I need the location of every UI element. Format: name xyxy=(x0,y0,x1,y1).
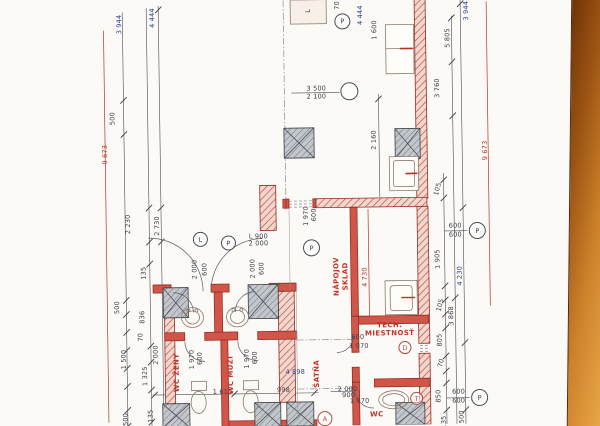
wall-segment xyxy=(205,332,238,340)
wall-segment xyxy=(165,333,185,341)
window xyxy=(389,156,418,190)
wall-segment xyxy=(164,316,175,404)
wall-segment xyxy=(316,197,427,208)
wall-segment xyxy=(260,185,277,230)
dimension-lines-red xyxy=(103,1,492,422)
wall-segment xyxy=(358,315,428,324)
scanned-floor-plan-photo: 3 9444 4449 6735002 2302 730135500836701… xyxy=(0,0,600,426)
wall-segment xyxy=(351,316,359,352)
sliding-door xyxy=(289,201,315,207)
wall-segment xyxy=(374,378,429,387)
wall-segment xyxy=(214,292,223,338)
column xyxy=(395,128,420,158)
window xyxy=(385,24,414,73)
wall-segment xyxy=(211,284,229,292)
plan-linework xyxy=(0,0,600,426)
wall-segment xyxy=(221,340,229,426)
column xyxy=(248,284,278,318)
toilet xyxy=(191,381,207,413)
wall-segment xyxy=(352,382,360,425)
column xyxy=(284,128,314,158)
floor-plan: 3 9444 4449 6735002 2302 730135500836701… xyxy=(0,0,600,426)
column xyxy=(287,402,314,426)
door-jamb xyxy=(286,199,289,208)
wall-segment xyxy=(350,207,359,316)
column xyxy=(163,404,190,426)
wall-segment xyxy=(278,291,296,402)
sink xyxy=(379,391,409,409)
table-surface-edge xyxy=(567,0,600,426)
door-jamb xyxy=(313,199,316,208)
wall-opening xyxy=(420,345,429,351)
boiler xyxy=(385,280,417,314)
wall-segment xyxy=(352,367,359,382)
wall-segment xyxy=(258,331,297,340)
column xyxy=(396,402,425,424)
column xyxy=(255,402,281,426)
fridge-box xyxy=(290,0,326,24)
column xyxy=(163,288,188,318)
washbasin xyxy=(226,307,248,327)
